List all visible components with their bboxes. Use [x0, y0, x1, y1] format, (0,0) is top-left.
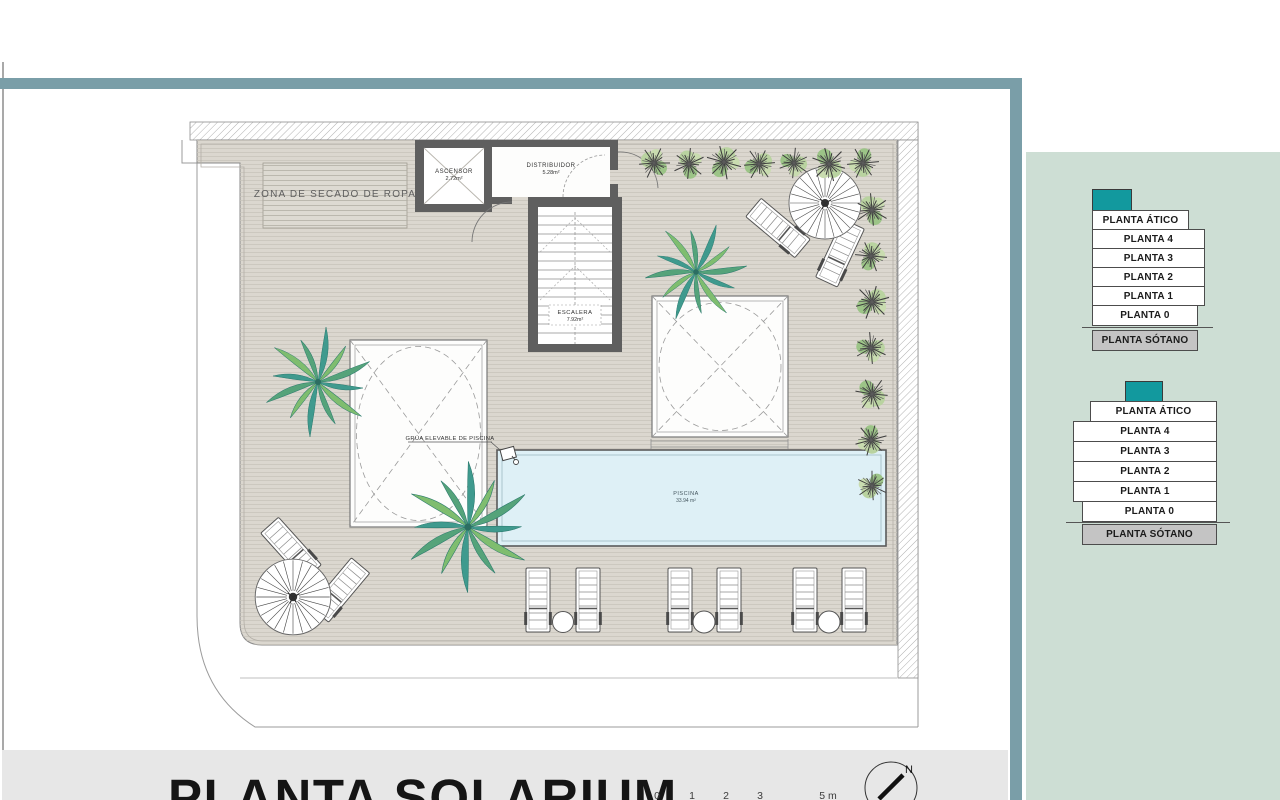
- floor-row-planta3-2[interactable]: PLANTA 3: [1073, 441, 1217, 462]
- side-table: [553, 612, 574, 633]
- floor-plan-drawing: ZONA DE SECADO DE ROPA: [0, 88, 1010, 800]
- floor-row-sotano-2[interactable]: PLANTA SÓTANO: [1082, 524, 1217, 545]
- current-floor-marker-bottom[interactable]: [1125, 381, 1163, 402]
- pergola-right: [652, 296, 788, 437]
- ground-line-bottom: [1066, 522, 1230, 523]
- floor-row-planta3[interactable]: PLANTA 3: [1092, 248, 1205, 268]
- escalera-area: 7.92m²: [567, 317, 584, 323]
- ascensor-area: 2.72m²: [445, 176, 462, 182]
- floor-row-planta2-2[interactable]: PLANTA 2: [1073, 461, 1217, 482]
- distribuidor-area: 5.28m²: [542, 170, 559, 176]
- floor-row-atico-2[interactable]: PLANTA ÁTICO: [1090, 401, 1217, 422]
- sheet: PLANTA ÁTICO PLANTA 4 PLANTA 3 PLANTA 2 …: [0, 0, 1280, 800]
- ascensor-label: ASCENSOR: [435, 169, 473, 175]
- scale-tick-5m: 5 m: [819, 790, 837, 800]
- scale-tick-2: 2: [723, 790, 729, 800]
- plan-title: PLANTA SOLARIUM: [168, 769, 678, 800]
- floor-row-planta0-2[interactable]: PLANTA 0: [1082, 501, 1217, 522]
- escalera-label: ESCALERA: [558, 310, 593, 316]
- drying-zone: ZONA DE SECADO DE ROPA: [254, 163, 416, 228]
- floor-row-planta4[interactable]: PLANTA 4: [1092, 229, 1205, 249]
- floor-row-planta2[interactable]: PLANTA 2: [1092, 267, 1205, 287]
- ground-line-top: [1082, 327, 1213, 328]
- scale-tick-3: 3: [757, 790, 763, 800]
- side-table: [818, 611, 840, 633]
- side-table: [693, 611, 715, 633]
- floor-row-atico[interactable]: PLANTA ÁTICO: [1092, 210, 1189, 230]
- distribuidor-label: DISTRIBUIDOR: [526, 163, 575, 169]
- pool-label: PISCINA: [673, 491, 699, 497]
- floor-row-planta0[interactable]: PLANTA 0: [1092, 305, 1198, 326]
- fan-palm-bottom-left: [255, 559, 331, 635]
- floor-row-sotano[interactable]: PLANTA SÓTANO: [1092, 330, 1198, 351]
- scale-tick-0: 0: [654, 790, 660, 800]
- scale-tick-1: 1: [689, 790, 695, 800]
- floor-row-planta1-2[interactable]: PLANTA 1: [1073, 481, 1217, 502]
- north-label: N: [905, 764, 913, 776]
- current-floor-marker-top[interactable]: [1092, 189, 1132, 211]
- sheet-right-border: [1010, 78, 1022, 800]
- drying-zone-label: ZONA DE SECADO DE ROPA: [254, 189, 416, 200]
- title-block: PLANTA SOLARIUM 0 1 2 3 5 m N: [2, 750, 1008, 800]
- pool-hoist-label: GRÚA ELEVABLE DE PISCINA: [406, 435, 495, 442]
- floor-row-planta1[interactable]: PLANTA 1: [1092, 286, 1205, 306]
- pool: PISCINA 33.94 m²: [497, 439, 886, 546]
- pergola-left: [350, 340, 487, 527]
- pool-area: 33.94 m²: [676, 498, 696, 504]
- floor-row-planta4-2[interactable]: PLANTA 4: [1073, 421, 1217, 442]
